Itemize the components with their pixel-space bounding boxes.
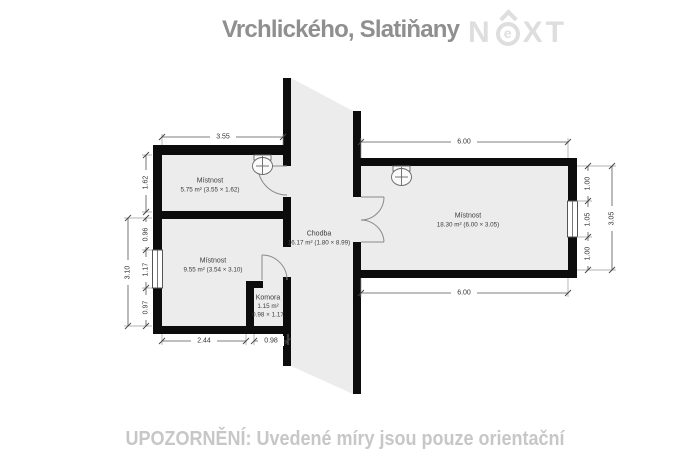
dim-label: 0.98 (264, 338, 278, 345)
dim-label: 1.00 (585, 177, 592, 191)
dim-label: 2.44 (197, 338, 211, 345)
chodba-name: Chodba (307, 231, 332, 238)
room-right-detail: 18.30 m² (6.00 × 3.05) (437, 222, 499, 229)
wall-komora-top (246, 281, 263, 288)
logo-e-mark: e (496, 21, 520, 45)
floorplan-page: 3.55 6.00 6.00 2.44 0.98 1.62 0.96 1.17 … (0, 0, 690, 468)
logo-letter-n: N (468, 16, 493, 50)
wall-right-room-right (568, 158, 577, 201)
logo-e-circle-icon: e (496, 22, 520, 46)
dim-label: 1.00 (585, 247, 592, 261)
toilet-icon (392, 166, 412, 186)
wall (153, 211, 283, 219)
dim-label: 1.62 (143, 176, 150, 190)
room-top-left-name: Místnost (197, 178, 224, 185)
dim-label: 0.97 (143, 301, 150, 315)
room-right-name: Místnost (455, 213, 482, 220)
chodba-detail: 16.17 m² (1.80 × 8.99) (288, 240, 350, 247)
dim-label: 3.10 (125, 266, 132, 280)
disclaimer-text: UPOZORNĚNÍ: Uvedené míry jsou pouze orie… (35, 428, 656, 451)
logo-letters-xt: XT (523, 16, 567, 50)
room-bottom-left-detail: 9.55 m² (3.54 × 3.10) (184, 267, 243, 274)
dim-label: 0.96 (143, 228, 150, 242)
next-logo: N e XT (468, 17, 567, 49)
wall-right-room-top (353, 158, 577, 166)
page-title: Vrchlického, Slatiňany (222, 16, 459, 44)
wall (153, 145, 162, 250)
floorplan-drawing: 3.55 6.00 6.00 2.44 0.98 1.62 0.96 1.17 … (0, 0, 690, 468)
wall-corridor-right (353, 242, 361, 394)
komora-name: Komora (256, 295, 281, 302)
komora-size: 0.98 × 1.17 (252, 312, 284, 319)
dim-label: 1.05 (585, 213, 592, 227)
dim-label: 3.05 (609, 212, 616, 226)
wall (153, 326, 291, 334)
window-right (568, 201, 578, 237)
room-top-left-detail: 5.75 m² (3.55 × 1.62) (181, 187, 240, 194)
wall (153, 145, 283, 155)
komora-area: 1.15 m² (257, 303, 278, 310)
dim-label: 6.00 (457, 139, 471, 146)
wall-corridor-right (353, 111, 361, 197)
room-fills (153, 78, 577, 394)
wall-corridor-left (283, 78, 291, 166)
dim-label: 6.00 (457, 290, 471, 297)
dim-label: 3.55 (216, 134, 230, 141)
wall-right-room-bottom (353, 270, 577, 278)
wall-right-room-right (568, 237, 577, 278)
toilet-icon (253, 155, 273, 175)
wall-corridor-left (283, 277, 291, 366)
dim-label: 1.17 (143, 263, 150, 277)
window-left (153, 250, 163, 288)
room-bottom-left-name: Místnost (200, 258, 227, 265)
